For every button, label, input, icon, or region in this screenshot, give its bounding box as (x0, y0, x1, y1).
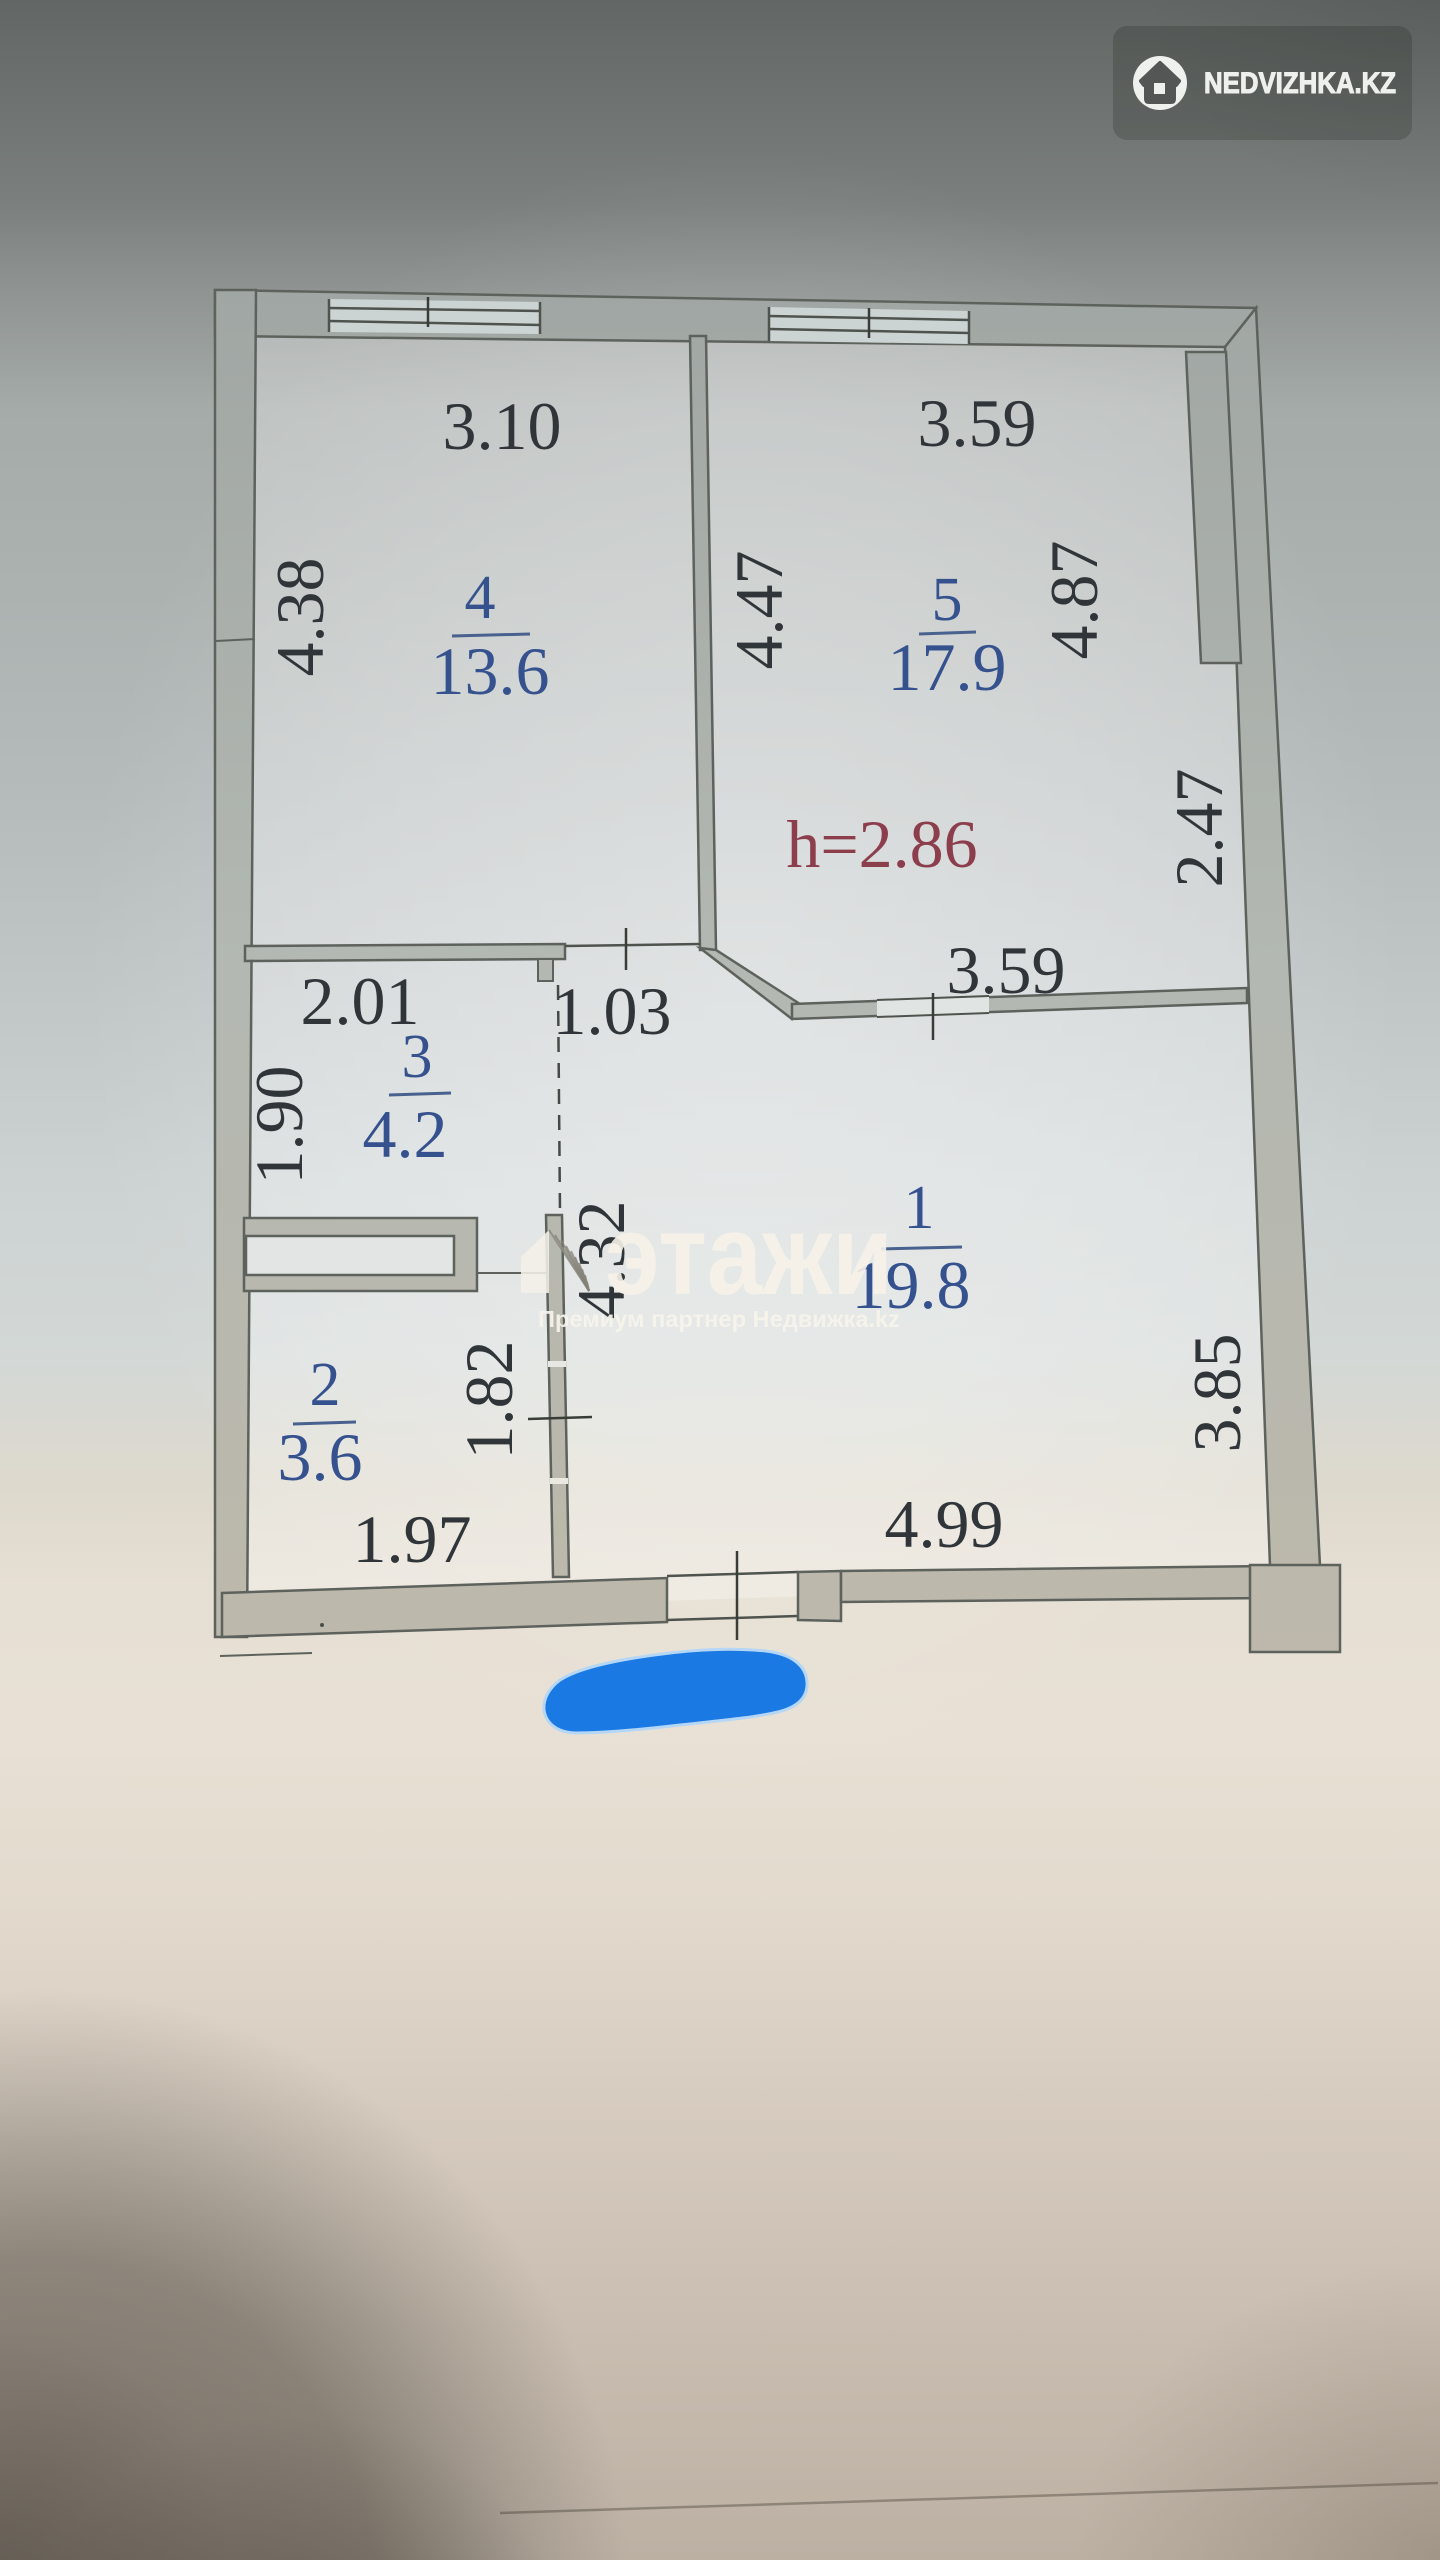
svg-text:Премиум партнер Недвижка.kz: Премиум партнер Недвижка.kz (538, 1306, 900, 1332)
svg-text:NEDVIZHKA.KZ: NEDVIZHKA.KZ (1204, 67, 1396, 100)
svg-text:этажи: этажи (605, 1192, 893, 1319)
